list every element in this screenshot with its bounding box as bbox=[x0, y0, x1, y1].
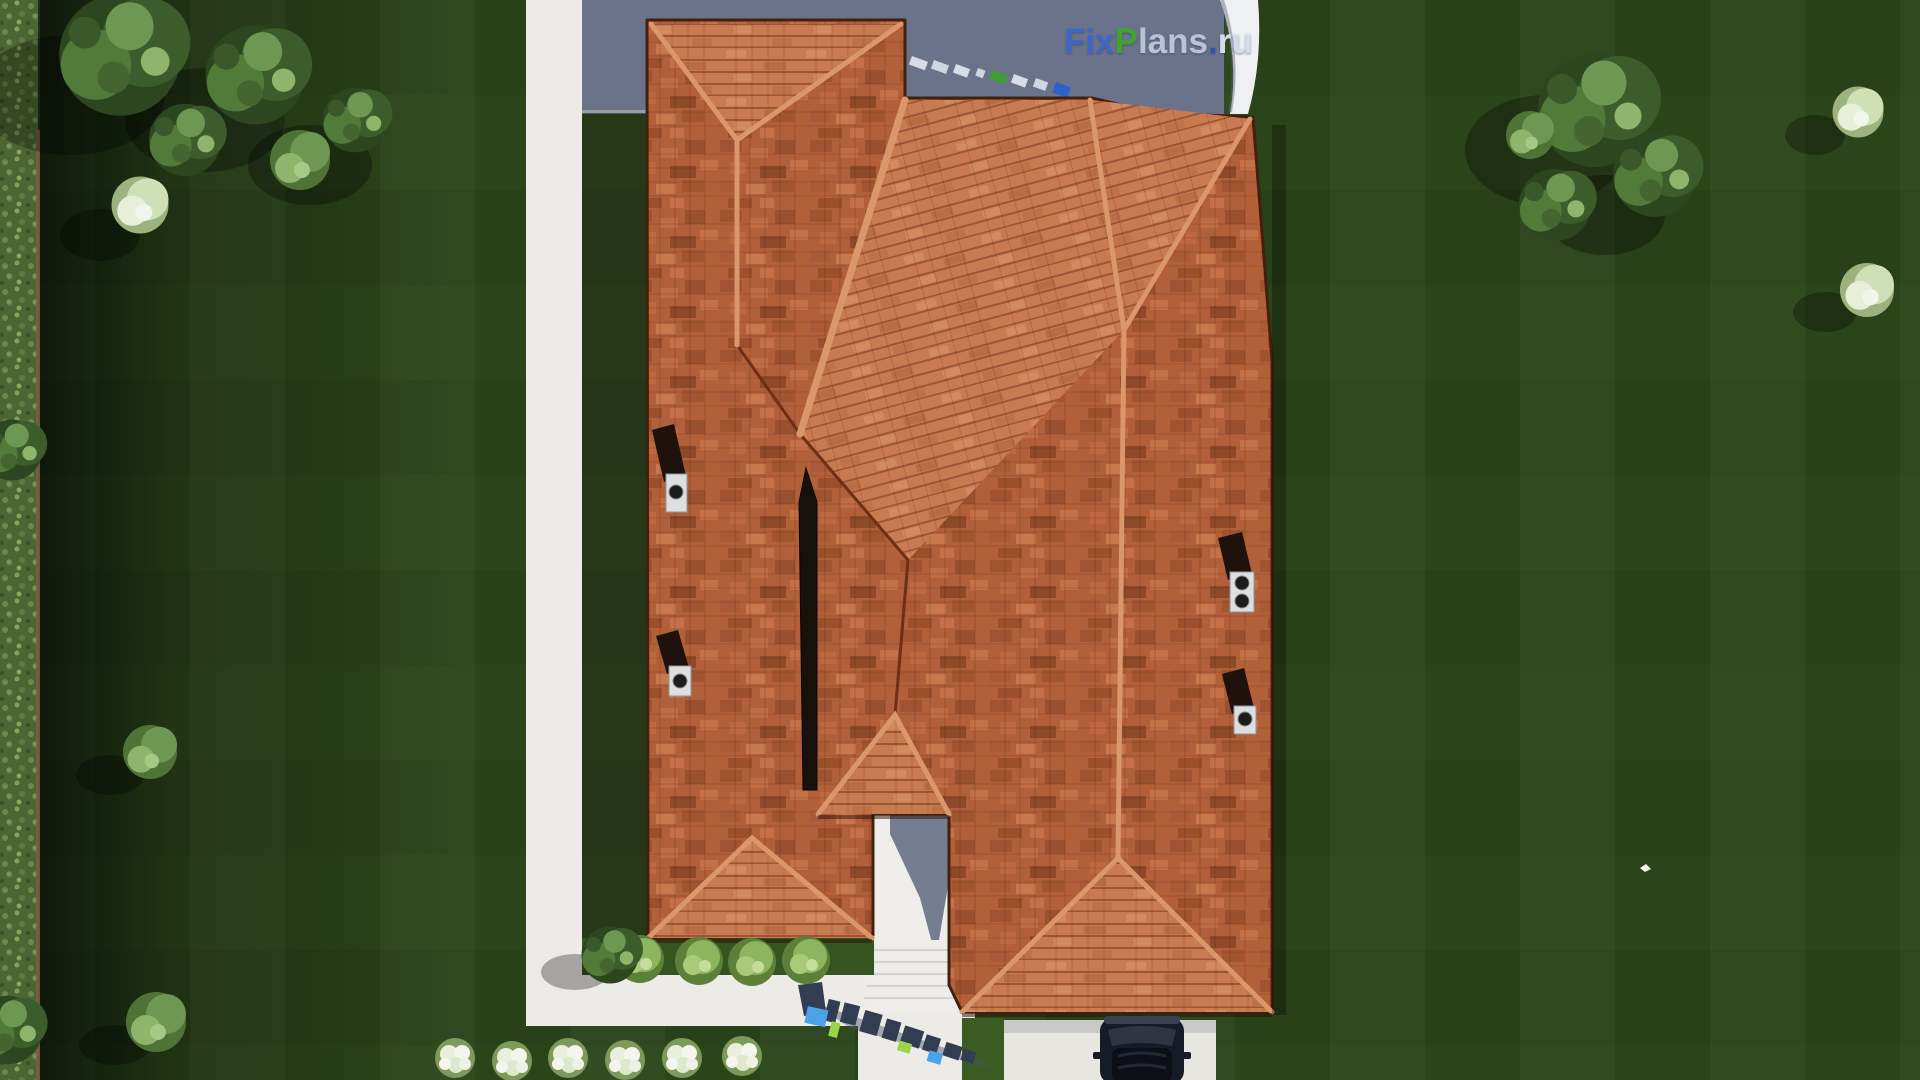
chimney-flue bbox=[673, 674, 687, 688]
brand-watermark: FixPlans.ru bbox=[1064, 22, 1253, 62]
garden-path-vertical bbox=[526, 0, 582, 1026]
chimney-flue bbox=[1238, 712, 1252, 726]
chimney-flue bbox=[669, 485, 683, 499]
brand-segment-lans: lans bbox=[1138, 22, 1208, 61]
car bbox=[1093, 1016, 1191, 1080]
brand-segment-dot: . bbox=[1208, 22, 1218, 61]
flower-cluster bbox=[548, 1038, 588, 1078]
white-flowering-tree bbox=[1833, 87, 1884, 138]
brand-segment-fix: Fix bbox=[1064, 22, 1115, 61]
boundary-hedge bbox=[0, 0, 38, 1080]
white-flowering-tree bbox=[1840, 263, 1894, 317]
white-flowering-tree bbox=[112, 177, 169, 234]
chimney-flue bbox=[1235, 594, 1249, 608]
chimney-flue bbox=[1235, 576, 1249, 590]
left-boundary bbox=[0, 0, 170, 1080]
brand-segment-p: P bbox=[1115, 22, 1138, 61]
car-mirror-right bbox=[1183, 1052, 1191, 1059]
render-canvas: FixPlans.ru bbox=[0, 0, 1920, 1080]
house-roof bbox=[647, 20, 1286, 1015]
boundary-fence-line bbox=[36, 130, 40, 1080]
house-west-shadow bbox=[582, 110, 648, 975]
flower-cluster bbox=[435, 1038, 475, 1078]
round-bush bbox=[728, 938, 776, 986]
house-east-shadow bbox=[1272, 125, 1286, 1015]
brand-segment-ru: ru bbox=[1218, 22, 1253, 61]
car-rear-glass bbox=[1104, 1016, 1180, 1024]
tree bbox=[1506, 111, 1554, 159]
tree bbox=[126, 992, 186, 1052]
flower-cluster bbox=[492, 1041, 532, 1080]
car-mirror-left bbox=[1093, 1052, 1101, 1059]
flower-cluster bbox=[722, 1036, 762, 1076]
round-bush bbox=[782, 936, 830, 984]
grass-strip-driveway bbox=[962, 1018, 1004, 1080]
tree bbox=[123, 725, 177, 779]
round-bush bbox=[675, 937, 723, 985]
flower-cluster bbox=[662, 1038, 702, 1078]
site-plan-scene bbox=[0, 0, 1920, 1080]
tree bbox=[270, 130, 330, 190]
flower-cluster bbox=[605, 1040, 645, 1080]
car-windshield bbox=[1108, 1026, 1176, 1046]
hedge-cast-shadow bbox=[40, 0, 170, 1080]
